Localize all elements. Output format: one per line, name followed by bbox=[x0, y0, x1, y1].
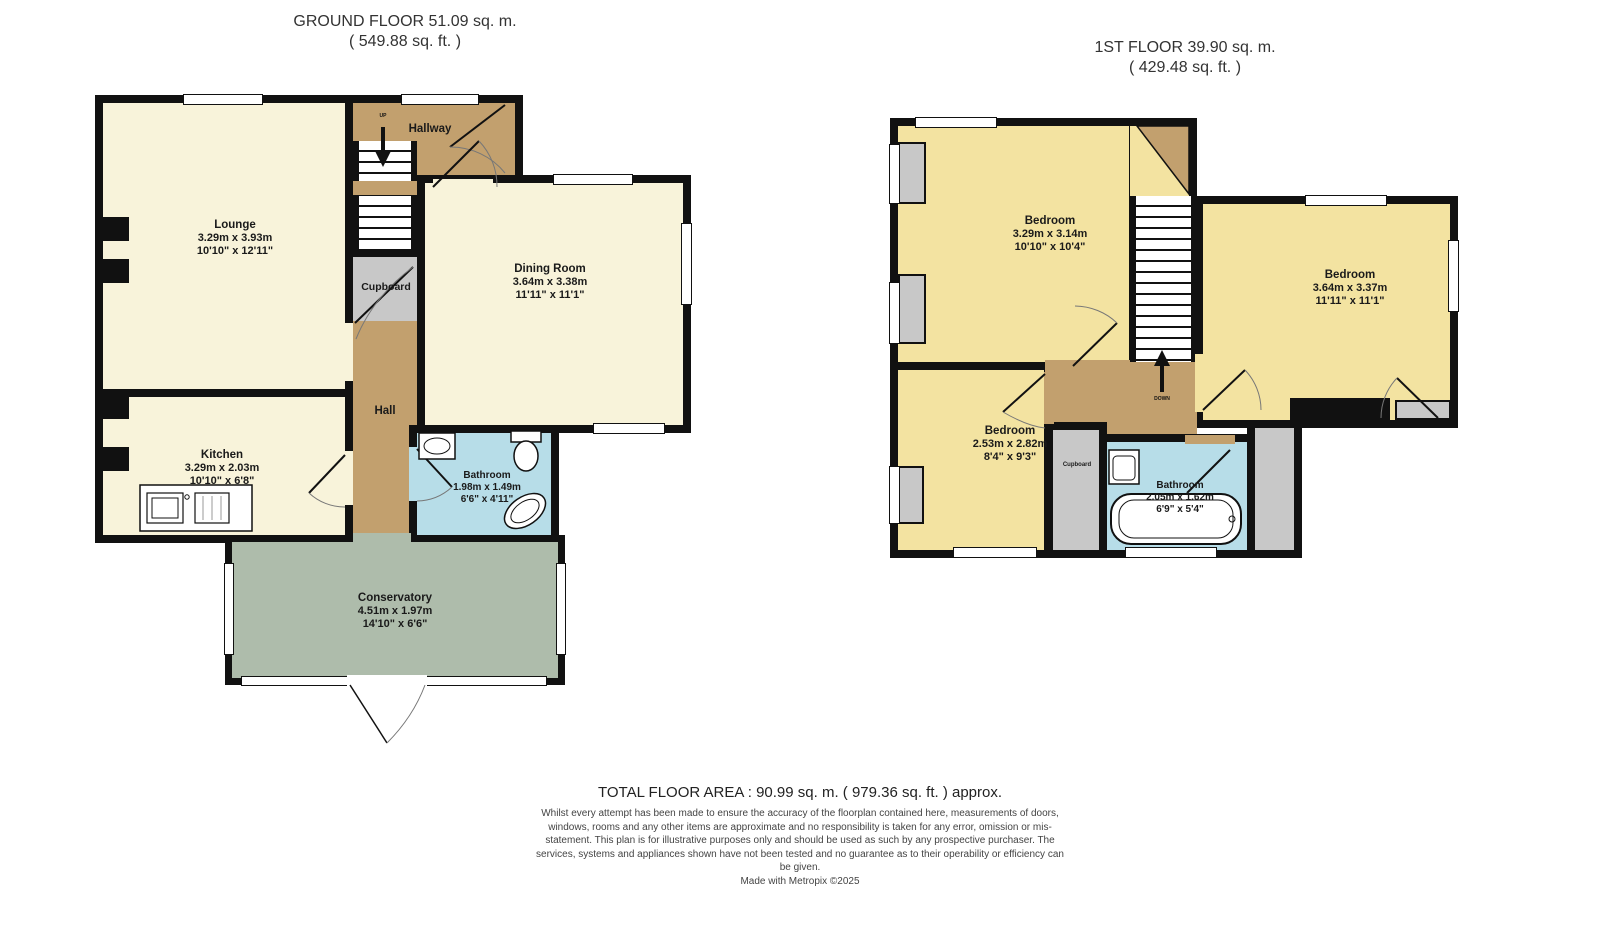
stairs-up-label: UP bbox=[375, 113, 391, 119]
toilet-bowl bbox=[514, 441, 538, 471]
lounge-imperial: 10'10" x 12'11" bbox=[135, 245, 335, 258]
kitchen-door-arc bbox=[309, 493, 345, 507]
stair-void-slope bbox=[1137, 126, 1189, 194]
bedroom-3-name: Bedroom bbox=[910, 425, 1110, 438]
bedroom-3-label: Bedroom 2.53m x 2.82m 8'4" x 9'3" bbox=[910, 425, 1110, 464]
conservatory-imperial: 14'10" x 6'6" bbox=[295, 618, 495, 631]
dining-door-arc bbox=[479, 141, 497, 187]
dining-door-leaf bbox=[433, 141, 479, 187]
bedroom-1-label: Bedroom 3.29m x 3.14m 10'10" x 10'4" bbox=[950, 215, 1150, 254]
cupboard-door-arc bbox=[356, 267, 413, 339]
ground-floor-plan: UP Lounge 3.29m x 3.93m 10'10" x 12'11" … bbox=[95, 95, 715, 745]
ground-cupboard-name: Cupboard bbox=[338, 281, 434, 294]
bedroom-3-metric: 2.53m x 2.82m bbox=[910, 438, 1110, 451]
ground-floor-title-line1: GROUND FLOOR 51.09 sq. m. bbox=[95, 12, 715, 32]
footer: TOTAL FLOOR AREA : 90.99 sq. m. ( 979.36… bbox=[0, 784, 1600, 887]
conservatory-metric: 4.51m x 1.97m bbox=[295, 605, 495, 618]
first-bathroom-name: Bathroom bbox=[1100, 480, 1260, 492]
kitchen-metric: 3.29m x 2.03m bbox=[122, 462, 322, 475]
bedroom-2-name: Bedroom bbox=[1250, 269, 1450, 282]
first-bathroom-metric: 2.05m x 1.62m bbox=[1100, 492, 1260, 504]
ground-cupboard-label: Cupboard bbox=[338, 281, 434, 294]
bedroom-2-imperial: 11'11" x 11'1" bbox=[1250, 295, 1450, 308]
lounge-metric: 3.29m x 3.93m bbox=[135, 232, 335, 245]
first-floor-plan: DOWN Bedroom 3.29m x 3.14m 10'10" x 10'4… bbox=[885, 110, 1485, 590]
sink-bowl bbox=[424, 438, 450, 454]
bedroom-2-eaves-door-leaf bbox=[1397, 378, 1438, 418]
bedroom-2-eaves-door-arc bbox=[1381, 378, 1397, 418]
kitchen-label: Kitchen 3.29m x 2.03m 10'10" x 6'8" bbox=[122, 449, 322, 488]
stairs-down-label: DOWN bbox=[1148, 396, 1176, 402]
conservatory-door-leaf bbox=[350, 685, 387, 743]
conservatory-label: Conservatory 4.51m x 1.97m 14'10" x 6'6" bbox=[295, 592, 495, 631]
first-floor-title: 1ST FLOOR 39.90 sq. m. ( 429.48 sq. ft. … bbox=[885, 38, 1485, 78]
bedroom-1-imperial: 10'10" x 10'4" bbox=[950, 241, 1150, 254]
dining-room-label: Dining Room 3.64m x 3.38m 11'11" x 11'1" bbox=[450, 263, 650, 302]
first-floor-title-line1: 1ST FLOOR 39.90 sq. m. bbox=[885, 38, 1485, 58]
conservatory-door-arc bbox=[387, 685, 425, 743]
hallway-name: Hallway bbox=[375, 123, 485, 136]
ground-bathroom-name: Bathroom bbox=[407, 470, 567, 482]
disclaimer-text: Whilst every attempt has been made to en… bbox=[530, 807, 1070, 875]
hall-label: Hall bbox=[350, 405, 420, 418]
dining-room-imperial: 11'11" x 11'1" bbox=[450, 289, 650, 302]
ground-bathroom-label: Bathroom 1.98m x 1.49m 6'6" x 4'11" bbox=[407, 470, 567, 506]
bedroom-2-door-leaf bbox=[1203, 370, 1245, 410]
first-cupboard-label: Cupboard bbox=[1048, 462, 1106, 468]
hall-name: Hall bbox=[350, 405, 420, 418]
first-floor-title-line2: ( 429.48 sq. ft. ) bbox=[885, 58, 1485, 78]
conservatory-name: Conservatory bbox=[295, 592, 495, 605]
cupboard-door-leaf bbox=[355, 267, 413, 323]
lounge-name: Lounge bbox=[135, 219, 335, 232]
bedroom-1-door-leaf bbox=[1073, 323, 1117, 366]
stairs-down-arrowhead bbox=[1154, 350, 1170, 366]
bedroom-1-name: Bedroom bbox=[950, 215, 1150, 228]
ground-floor-title: GROUND FLOOR 51.09 sq. m. ( 549.88 sq. f… bbox=[95, 12, 715, 52]
total-floor-area: TOTAL FLOOR AREA : 90.99 sq. m. ( 979.36… bbox=[0, 784, 1600, 801]
first-floor-detail-overlay bbox=[885, 110, 1485, 590]
ground-bathroom-imperial: 6'6" x 4'11" bbox=[407, 494, 567, 506]
bedroom-2-metric: 3.64m x 3.37m bbox=[1250, 282, 1450, 295]
bedroom-3-door-leaf bbox=[1003, 374, 1045, 412]
dining-room-name: Dining Room bbox=[450, 263, 650, 276]
dining-room-metric: 3.64m x 3.38m bbox=[450, 276, 650, 289]
bedroom-1-door-arc bbox=[1075, 306, 1117, 323]
lounge-label: Lounge 3.29m x 3.93m 10'10" x 12'11" bbox=[135, 219, 335, 258]
hallway-label: Hallway bbox=[375, 123, 485, 136]
bedroom-2-label: Bedroom 3.64m x 3.37m 11'11" x 11'1" bbox=[1250, 269, 1450, 308]
bedroom-1-metric: 3.29m x 3.14m bbox=[950, 228, 1150, 241]
kitchen-sink-bowl bbox=[152, 498, 178, 518]
ground-floor-detail-overlay bbox=[95, 95, 715, 745]
ground-bathroom-metric: 1.98m x 1.49m bbox=[407, 482, 567, 494]
first-bathroom-imperial: 6'9" x 5'4" bbox=[1100, 504, 1260, 516]
kitchen-name: Kitchen bbox=[122, 449, 322, 462]
bedroom-2-door-arc bbox=[1245, 370, 1261, 410]
stairs-up-arrowhead bbox=[375, 151, 391, 167]
sink-bowl bbox=[1113, 456, 1135, 480]
front-door-arc bbox=[450, 147, 505, 173]
ground-floor-title-line2: ( 549.88 sq. ft. ) bbox=[95, 32, 715, 52]
kitchen-imperial: 10'10" x 6'8" bbox=[122, 475, 322, 488]
first-bathroom-label: Bathroom 2.05m x 1.62m 6'9" x 5'4" bbox=[1100, 480, 1260, 516]
metropix-credit: Made with Metropix ©2025 bbox=[0, 876, 1600, 887]
